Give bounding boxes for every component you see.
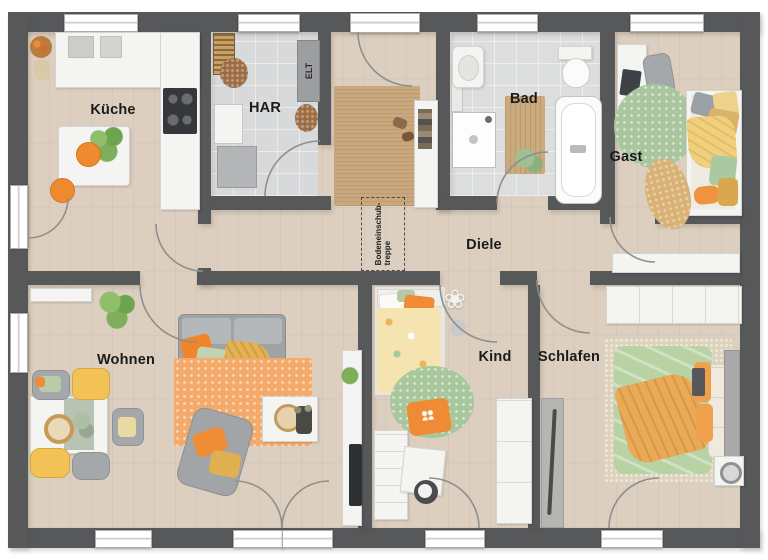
room-label-bad: Bad — [510, 91, 538, 107]
fruit-bowl — [30, 36, 52, 58]
hall-sideboard — [612, 253, 740, 273]
mirror-streak — [547, 409, 557, 515]
attic-stairs-label: Bodeneinschub- treppe — [374, 203, 392, 266]
laundry-basket-1 — [220, 58, 248, 88]
window-top-har — [238, 14, 300, 32]
armchair-throw-mustard — [208, 450, 242, 479]
schlafen-wardrobe — [606, 286, 742, 324]
room-label-diele: Diele — [466, 237, 502, 253]
pillow-deco — [421, 409, 434, 421]
sofa-cushion-right — [234, 318, 282, 344]
shower-head — [485, 116, 492, 123]
wall-mid-pier — [590, 271, 610, 285]
entrance-door-sill — [350, 13, 420, 33]
cooktop — [163, 88, 197, 134]
wall-bad-bottom-left — [436, 196, 497, 210]
schlafen-tablet — [692, 368, 705, 396]
window-top-gast — [630, 14, 704, 32]
wall-hall-bad — [436, 32, 450, 210]
shower — [452, 112, 496, 168]
wall-mid-segment4 — [610, 271, 740, 285]
dryer-unit — [217, 146, 257, 188]
sink-basin — [458, 55, 479, 81]
chair-seat — [418, 484, 432, 498]
wall-mid-segment3 — [500, 271, 537, 285]
jute-rug — [334, 86, 420, 206]
dining-chair-northwest — [32, 370, 70, 400]
wall-mid-segment2 — [197, 271, 440, 285]
bathtub-faucet — [570, 145, 586, 153]
terrace-door-sill-right — [282, 530, 333, 548]
kind-rug-pillow-orange — [406, 397, 452, 437]
attic-stairs-box: Bodeneinschub- treppe — [361, 197, 405, 271]
nightstand-lamp — [720, 462, 742, 484]
vase-twigs — [290, 402, 316, 418]
wohnen-plant — [94, 286, 140, 332]
stool-orange-2 — [50, 178, 75, 203]
window-left-kueche — [10, 185, 28, 249]
room-label-gast: Gast — [609, 149, 642, 165]
dining-chair-east — [112, 408, 144, 446]
floor-plan: ELT Bodeneinschub- treppe — [0, 0, 768, 560]
chair-cushion-orange — [35, 377, 45, 387]
window-top-kueche — [64, 14, 138, 32]
stool-orange-1 — [76, 142, 101, 167]
washing-machine — [214, 104, 243, 144]
cutting-board-2 — [100, 36, 122, 58]
window-top-bad — [477, 14, 538, 32]
schlafen-pillow-orange-2 — [696, 404, 713, 442]
chair-cushion-paleyellow — [118, 417, 136, 437]
outer-wall-left — [8, 12, 28, 548]
tv — [349, 444, 362, 506]
kind-flower-rug: ❀ — [444, 284, 466, 315]
kind-gray-dot-rug — [450, 320, 466, 336]
schlafen-headboard — [724, 350, 740, 466]
hall-wardrobe — [414, 100, 438, 208]
room-label-wohnen: Wohnen — [97, 352, 155, 368]
dining-chair-south-gray — [72, 452, 110, 480]
dining-chair-north-yellow — [72, 368, 110, 400]
door-sill-kind — [425, 530, 485, 548]
window-bottom-wohnen — [95, 530, 152, 548]
window-left-wohnen — [10, 313, 28, 373]
bath-plant — [512, 146, 544, 176]
room-label-schlafen: Schlafen — [538, 349, 600, 365]
laundry-basket-2 — [295, 104, 318, 132]
gast-pillow-mustard — [718, 178, 738, 206]
coffee-table-vase — [296, 406, 312, 434]
bathtub — [555, 96, 602, 204]
door-sill-schlafen — [601, 530, 663, 548]
wall-mid-segment1 — [28, 271, 140, 285]
room-label-kind: Kind — [478, 349, 511, 365]
bathroom-sink — [452, 46, 484, 88]
dining-chair-south-yellow — [30, 448, 70, 478]
wall-har-bottom — [211, 196, 331, 210]
room-label-kueche: Küche — [90, 102, 135, 118]
shower-drain — [469, 135, 478, 144]
dining-deco-plant — [72, 408, 96, 440]
room-label-har: HAR — [249, 100, 281, 116]
schlafen-mirror-panel — [541, 398, 564, 528]
elt-cabinet: ELT — [297, 40, 320, 102]
toilet-bowl — [562, 58, 590, 88]
cutting-board-1 — [68, 36, 94, 58]
hanging-clothes — [418, 109, 432, 149]
wohnen-shelf — [30, 288, 92, 302]
macrame-hanging — [34, 60, 50, 80]
tv-bench-plant — [340, 364, 362, 390]
kind-wardrobe — [496, 398, 532, 524]
kind-desk-chair — [414, 480, 438, 504]
dining-bowl — [44, 414, 74, 444]
terrace-door-sill-left — [233, 530, 284, 548]
elt-label: ELT — [303, 63, 313, 79]
wall-bad-gast — [600, 32, 615, 224]
